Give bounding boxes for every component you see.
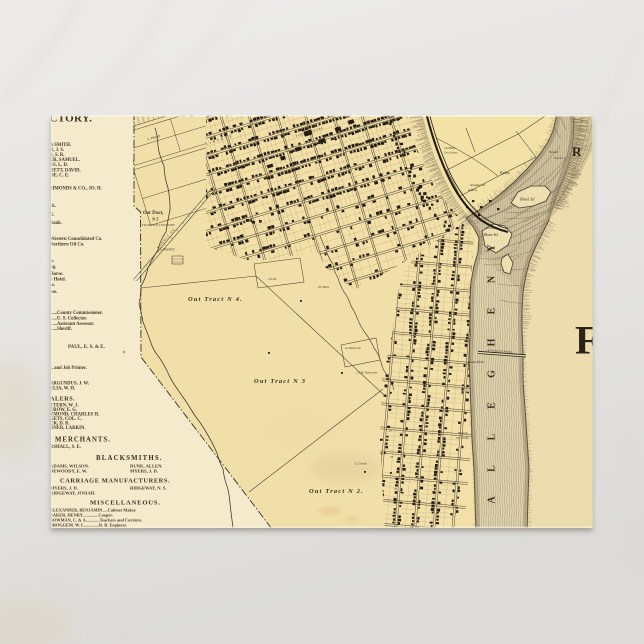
svg-text:Landing: Landing — [485, 227, 495, 230]
svg-text:Epley: Epley — [499, 170, 510, 175]
svg-text:Out Tract N 3: Out Tract N 3 — [254, 378, 306, 385]
svg-text:Hotel Isl: Hotel Isl — [519, 197, 535, 202]
svg-text:DEWOODY, E. W.: DEWOODY, E. W. — [50, 469, 87, 474]
svg-text:PAUL, E. S. & E.: PAUL, E. S. & E. — [68, 345, 106, 350]
svg-text:......U. S. Collector.: ......U. S. Collector. — [50, 317, 87, 322]
svg-text:Oil Works: Oil Works — [456, 436, 469, 440]
svg-text:Stilwell: Stilwell — [549, 150, 559, 154]
svg-text:BLACKSMITHS.: BLACKSMITHS. — [96, 455, 163, 462]
svg-text:......County Commissioner.: ......County Commissioner. — [50, 311, 103, 316]
svg-text:Western Consolidated Co.: Western Consolidated Co. — [50, 237, 102, 242]
svg-text:Y: Y — [487, 244, 498, 252]
svg-text:SIMONDS & CO., JO. H.: SIMONDS & CO., JO. H. — [50, 187, 102, 192]
svg-text:Jno Hanks: Jno Hanks — [444, 147, 455, 150]
svg-text:N 5: N 5 — [151, 217, 159, 222]
svg-text:OE, C. E.: OE, C. E. — [50, 173, 69, 178]
svg-text:MYERS, J. D.: MYERS, J. D. — [130, 469, 158, 474]
svg-text:J.S.M.: J.S.M. — [268, 277, 277, 281]
svg-text:Refinery: Refinery — [467, 189, 478, 192]
svg-text:Corn Solons: Corn Solons — [444, 152, 457, 155]
svg-text:L: L — [487, 465, 498, 472]
svg-text:Woodruff Rn.: Woodruff Rn. — [468, 360, 485, 364]
svg-text:N: N — [487, 275, 498, 283]
svg-text:E: E — [487, 307, 498, 314]
svg-text:FRANKLIN TOWNSHIP: FRANKLIN TOWNSHIP — [142, 224, 175, 227]
svg-text:R: R — [572, 144, 582, 159]
svg-text:Bone Isl: Bone Isl — [484, 232, 499, 237]
svg-text:E: E — [487, 402, 498, 409]
svg-text:RIDGEWAY, JOSIAH.: RIDGEWAY, JOSIAH. — [50, 491, 95, 496]
svg-text:77: 77 — [389, 429, 393, 433]
svg-text:H: H — [487, 338, 498, 346]
svg-text:Cemetery: Cemetery — [160, 248, 175, 252]
svg-text:79: 79 — [394, 487, 398, 491]
svg-text:MERCHANTS.: MERCHANTS. — [55, 437, 111, 444]
svg-text:Tap & Co: Tap & Co — [554, 156, 566, 160]
svg-text:RSHALL, S. E.: RSHALL, S. E. — [50, 445, 81, 450]
svg-text:MISCELLANEOUS.: MISCELLANEOUS. — [90, 500, 161, 507]
svg-text:ELIA, W. H.: ELIA, W. H. — [50, 387, 75, 392]
svg-text:CARRIAGE MANUFACTURERS.: CARRIAGE MANUFACTURERS. — [60, 478, 170, 485]
svg-text:J.S.M. Patterson: J.S.M. Patterson — [356, 371, 378, 375]
svg-text:G: G — [487, 370, 498, 378]
svg-text:RIDGEWAY, N. S.: RIDGEWAY, N. S. — [130, 486, 167, 491]
svg-text:Northern Oil Co.: Northern Oil Co. — [50, 243, 84, 248]
svg-text:......Sheriff.: ......Sheriff. — [50, 327, 72, 332]
svg-text:Oil Wells: Oil Wells — [318, 285, 330, 289]
svg-text:L.Corbit: L.Corbit — [354, 462, 368, 466]
svg-text:Out Tract N 2.: Out Tract N 2. — [309, 488, 364, 495]
svg-text:Out Tract N 4.: Out Tract N 4. — [188, 296, 243, 303]
svg-text:Sheakley Oil: Sheakley Oil — [470, 183, 485, 187]
svg-text:RNER, LARKIN.: RNER, LARKIN. — [50, 426, 86, 431]
svg-text:78: 78 — [390, 455, 394, 459]
svg-text:A: A — [487, 496, 498, 504]
svg-text:Nichols: Nichols — [457, 431, 468, 435]
svg-text:A. Patterson: A. Patterson — [344, 346, 361, 350]
svg-text:ALERS.: ALERS. — [50, 396, 75, 403]
svg-text:s, and Job Printer.: s, and Job Printer. — [50, 366, 87, 371]
svg-text:Out Tract,: Out Tract, — [143, 211, 163, 216]
svg-text:L: L — [487, 433, 498, 440]
